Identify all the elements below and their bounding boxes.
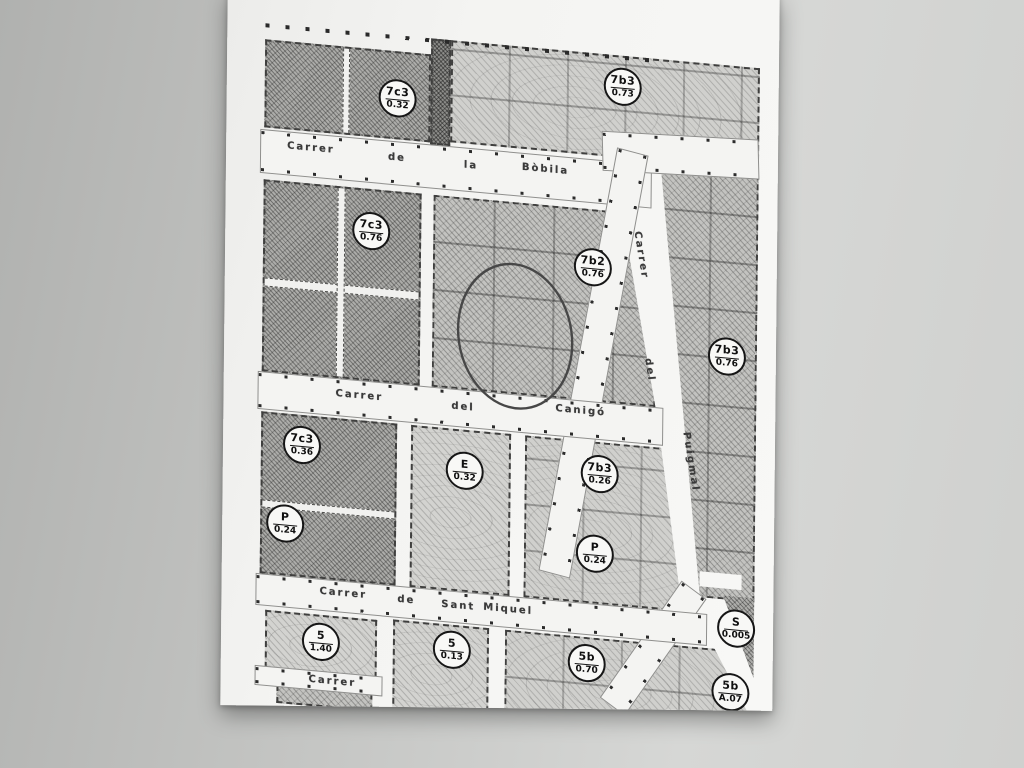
hand-drawn-circle-annotation xyxy=(439,241,601,432)
zone-badge-5b-corner: 5b A.07 xyxy=(711,671,749,710)
zone-code: 5 xyxy=(317,630,325,642)
zone-value: 0.76 xyxy=(360,233,382,244)
zone-code: 7c3 xyxy=(290,432,313,445)
paper-clip-region: Carrer de la Bòbila Carrer del Canigó Ca… xyxy=(220,0,779,711)
zone-code: S xyxy=(732,616,741,628)
photo-background: Carrer de la Bòbila Carrer del Canigó Ca… xyxy=(0,0,1024,768)
block-mid-left-7c3 xyxy=(262,179,422,385)
block-equipment-E xyxy=(410,425,512,596)
zone-code: 7c3 xyxy=(360,218,383,231)
street-name-word: de xyxy=(388,152,406,165)
zone-value: 0.26 xyxy=(588,476,610,487)
zone-code: E xyxy=(461,458,469,470)
zone-value: 0.24 xyxy=(274,526,296,537)
zone-code: 7b3 xyxy=(610,74,635,87)
paper-tilt-wrapper: Carrer de la Bòbila Carrer del Canigó Ca… xyxy=(0,0,1024,768)
street-name-word: Carrer xyxy=(632,231,651,280)
street-name-word: de xyxy=(397,594,415,607)
zone-value: 0.36 xyxy=(291,447,313,458)
zone-code: 5b xyxy=(578,650,595,663)
block-lower-left-7c3 xyxy=(260,411,398,585)
dark-strip-top xyxy=(430,38,451,146)
zone-value: 0.76 xyxy=(716,359,738,370)
zone-value: 0.32 xyxy=(454,473,476,484)
map-layer: Carrer de la Bòbila Carrer del Canigó Ca… xyxy=(220,0,779,711)
zone-value: 0.005 xyxy=(722,630,751,642)
zone-code: P xyxy=(591,541,600,553)
zone-value: 1.40 xyxy=(310,644,332,655)
zone-code: P xyxy=(281,511,290,523)
zone-value: 0.70 xyxy=(576,665,598,676)
zone-value: 0.24 xyxy=(584,556,606,567)
zone-value: 0.13 xyxy=(441,652,463,663)
zone-code: 5 xyxy=(448,637,456,649)
zone-code: 5b xyxy=(722,679,739,692)
zone-code: 7c3 xyxy=(386,85,409,98)
block-lane xyxy=(336,188,346,377)
street-name-word: la xyxy=(464,159,478,171)
block-lane xyxy=(342,48,350,133)
zone-value: 0.73 xyxy=(612,89,634,100)
zone-code: 7b3 xyxy=(587,461,612,474)
zone-code: 7b3 xyxy=(715,343,740,356)
zone-value: 0.32 xyxy=(386,100,408,111)
zone-value: A.07 xyxy=(719,694,742,705)
